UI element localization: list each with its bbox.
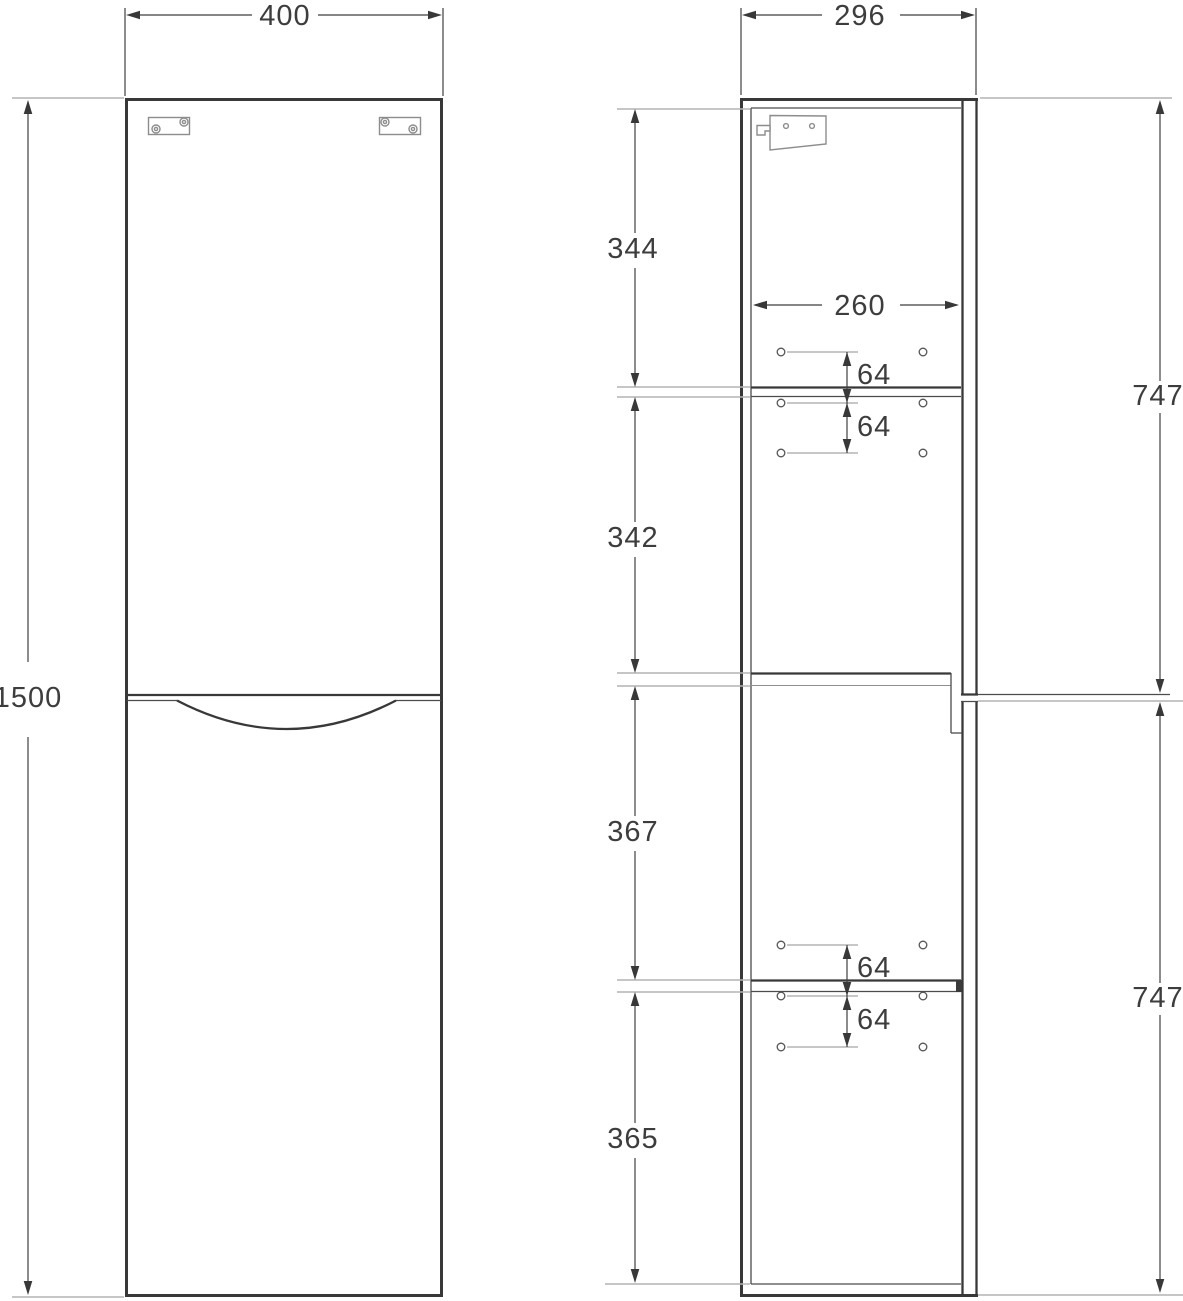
arrow-right (961, 11, 975, 20)
dim-lower-door-height: 747 (1132, 702, 1183, 1293)
dim-hole-spacing-label: 64 (857, 952, 891, 984)
front-door-gap (127, 695, 441, 729)
dim-interior-depth: 260 (753, 290, 959, 322)
dim-hole-spacing-lower-b: 64 (843, 996, 892, 1047)
side-upper-shelf (751, 388, 961, 397)
hanger-hook (757, 126, 770, 136)
dim-side-depth: 296 (741, 0, 976, 95)
dim-front-height-label: 1500 (0, 682, 62, 714)
dim-hole-spacing-lower-a: 64 (843, 945, 892, 996)
arrow-left (742, 11, 756, 20)
dim-lower-door-label: 747 (1132, 982, 1183, 1014)
drawing-svg: 400 1500 (0, 0, 1183, 1301)
dim-hole-spacing-label: 64 (857, 359, 891, 391)
dim-side-depth-label: 296 (834, 0, 885, 32)
dim-front-height: 1500 (0, 98, 124, 1297)
dim-upper-mid-section: 342 (607, 397, 658, 673)
arrow-up (24, 100, 33, 114)
dim-hole-spacing-label: 64 (857, 411, 891, 443)
dim-upper-mid-section-label: 342 (607, 522, 658, 554)
arrow-left (753, 301, 767, 310)
shelf-pin-holes (777, 348, 927, 1051)
side-hanger-bracket (757, 116, 826, 151)
dim-lower-mid-section: 367 (607, 686, 658, 980)
dim-interior-depth-label: 260 (834, 290, 885, 322)
side-doors-profile (961, 98, 978, 1297)
dim-top-section: 344 (607, 109, 658, 387)
front-left-hanger-bracket (149, 118, 190, 135)
front-view (127, 100, 442, 1296)
dim-hole-spacing-upper-b: 64 (843, 403, 892, 453)
arrow-down (24, 1281, 33, 1295)
cabinet-dimension-drawing: 400 1500 (0, 0, 1183, 1301)
dim-hole-spacings: 64 64 64 64 (843, 352, 892, 1047)
front-cabinet-outline (127, 100, 442, 1296)
arrow-right (945, 301, 959, 310)
dim-hole-spacing-label: 64 (857, 1004, 891, 1036)
dim-bottom-section: 365 (607, 992, 658, 1283)
dim-bottom-section-label: 365 (607, 1123, 658, 1155)
dim-section-chain: 344 342 367 365 (605, 109, 750, 1284)
dim-front-width-label: 400 (259, 0, 310, 32)
handle-recess-curve (177, 701, 396, 730)
dim-lower-mid-section-label: 367 (607, 816, 658, 848)
dim-door-heights: 747 747 (978, 98, 1183, 1295)
dim-top-section-label: 344 (607, 233, 658, 265)
dim-upper-door-label: 747 (1132, 380, 1183, 412)
side-view (740, 98, 978, 1297)
side-middle-divider (751, 673, 962, 733)
dim-front-width: 400 (125, 0, 443, 96)
dim-upper-door-height: 747 (1132, 100, 1183, 693)
dim-hole-spacing-upper-a: 64 (843, 352, 892, 403)
front-right-hanger-bracket (380, 118, 421, 135)
arrow-left (126, 11, 140, 20)
arrow-right (428, 11, 442, 20)
